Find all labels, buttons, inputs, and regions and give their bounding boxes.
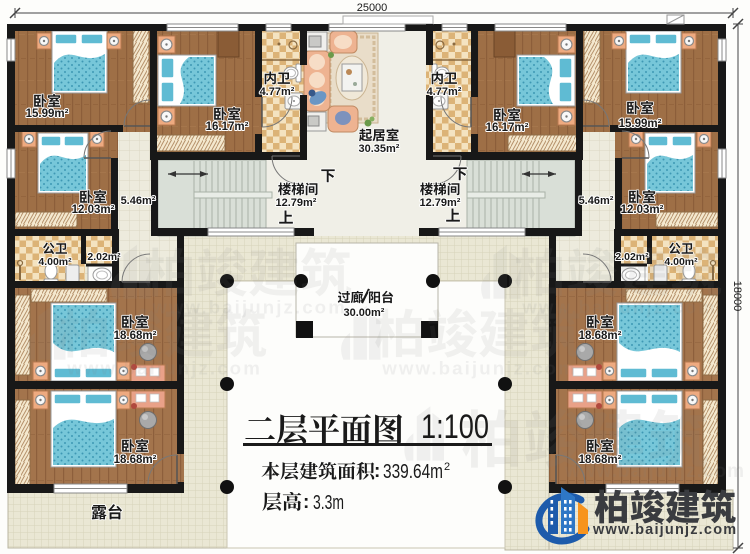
svg-text::: : bbox=[303, 492, 309, 513]
svg-text:18.68m²: 18.68m² bbox=[114, 330, 157, 342]
svg-text:16.17m²: 16.17m² bbox=[486, 122, 529, 134]
svg-text:12.79m²: 12.79m² bbox=[276, 197, 317, 209]
svg-text:5.46m²: 5.46m² bbox=[121, 195, 156, 207]
svg-text:15.99m²: 15.99m² bbox=[619, 118, 662, 130]
svg-text:www.baijunjz.com: www.baijunjz.com bbox=[66, 358, 262, 379]
svg-text:1:100: 1:100 bbox=[421, 408, 489, 446]
svg-text:18.68m²: 18.68m² bbox=[579, 454, 622, 466]
svg-text:18.68m²: 18.68m² bbox=[579, 330, 622, 342]
svg-text:4.77m²: 4.77m² bbox=[260, 86, 295, 98]
svg-text:30.35m²: 30.35m² bbox=[359, 143, 400, 155]
svg-text:5.46m²: 5.46m² bbox=[579, 195, 614, 207]
svg-text:339.64m: 339.64m bbox=[383, 461, 443, 483]
svg-text::: : bbox=[374, 461, 380, 482]
svg-text:15.99m²: 15.99m² bbox=[26, 108, 69, 120]
svg-text:12.03m²: 12.03m² bbox=[621, 204, 664, 216]
svg-text:18.68m²: 18.68m² bbox=[114, 454, 157, 466]
svg-text:4.00m²: 4.00m² bbox=[38, 256, 72, 268]
svg-text:2.02m²: 2.02m² bbox=[87, 251, 121, 263]
svg-text:4.77m²: 4.77m² bbox=[427, 86, 462, 98]
svg-text:25000: 25000 bbox=[357, 2, 388, 14]
svg-text:18000: 18000 bbox=[731, 281, 743, 312]
svg-text:4.00m²: 4.00m² bbox=[664, 256, 698, 268]
svg-text:12.03m²: 12.03m² bbox=[72, 204, 115, 216]
svg-text:30.00m²: 30.00m² bbox=[344, 307, 385, 319]
svg-text:12.79m²: 12.79m² bbox=[420, 197, 461, 209]
svg-text:2: 2 bbox=[444, 461, 450, 473]
svg-text:16.17m²: 16.17m² bbox=[206, 121, 249, 133]
svg-text:www.baijunjz.com: www.baijunjz.com bbox=[381, 358, 577, 379]
svg-text:2.02m²: 2.02m² bbox=[615, 251, 649, 263]
svg-text:www.baijunjz.com: www.baijunjz.com bbox=[592, 522, 737, 538]
svg-text:3.3m: 3.3m bbox=[313, 492, 344, 514]
